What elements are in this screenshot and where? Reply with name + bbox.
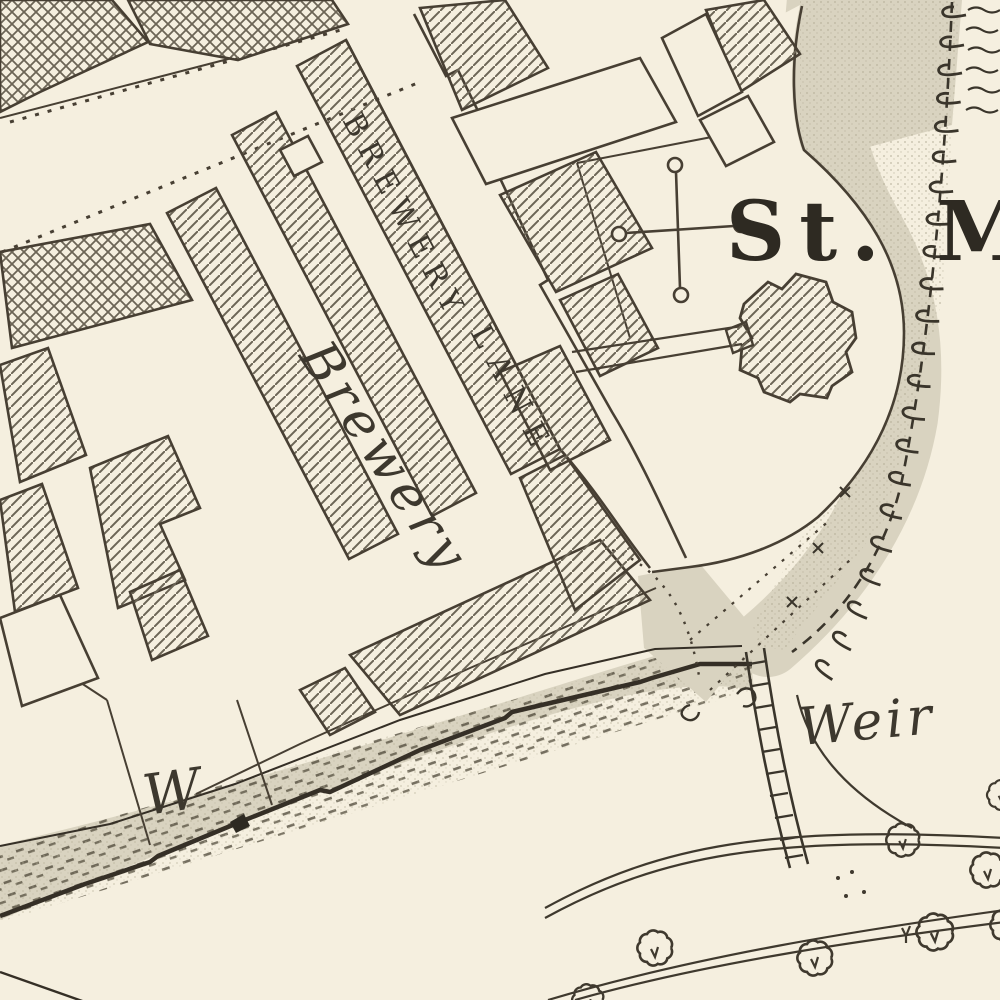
- label-weir: Weir: [796, 686, 938, 758]
- map-canvas: BREWERY LANE Brewery St. M Weir W: [0, 0, 1000, 1000]
- historic-os-map: BREWERY LANE Brewery St. M Weir W: [0, 0, 1000, 1000]
- label-st-m: St. M: [726, 184, 1000, 280]
